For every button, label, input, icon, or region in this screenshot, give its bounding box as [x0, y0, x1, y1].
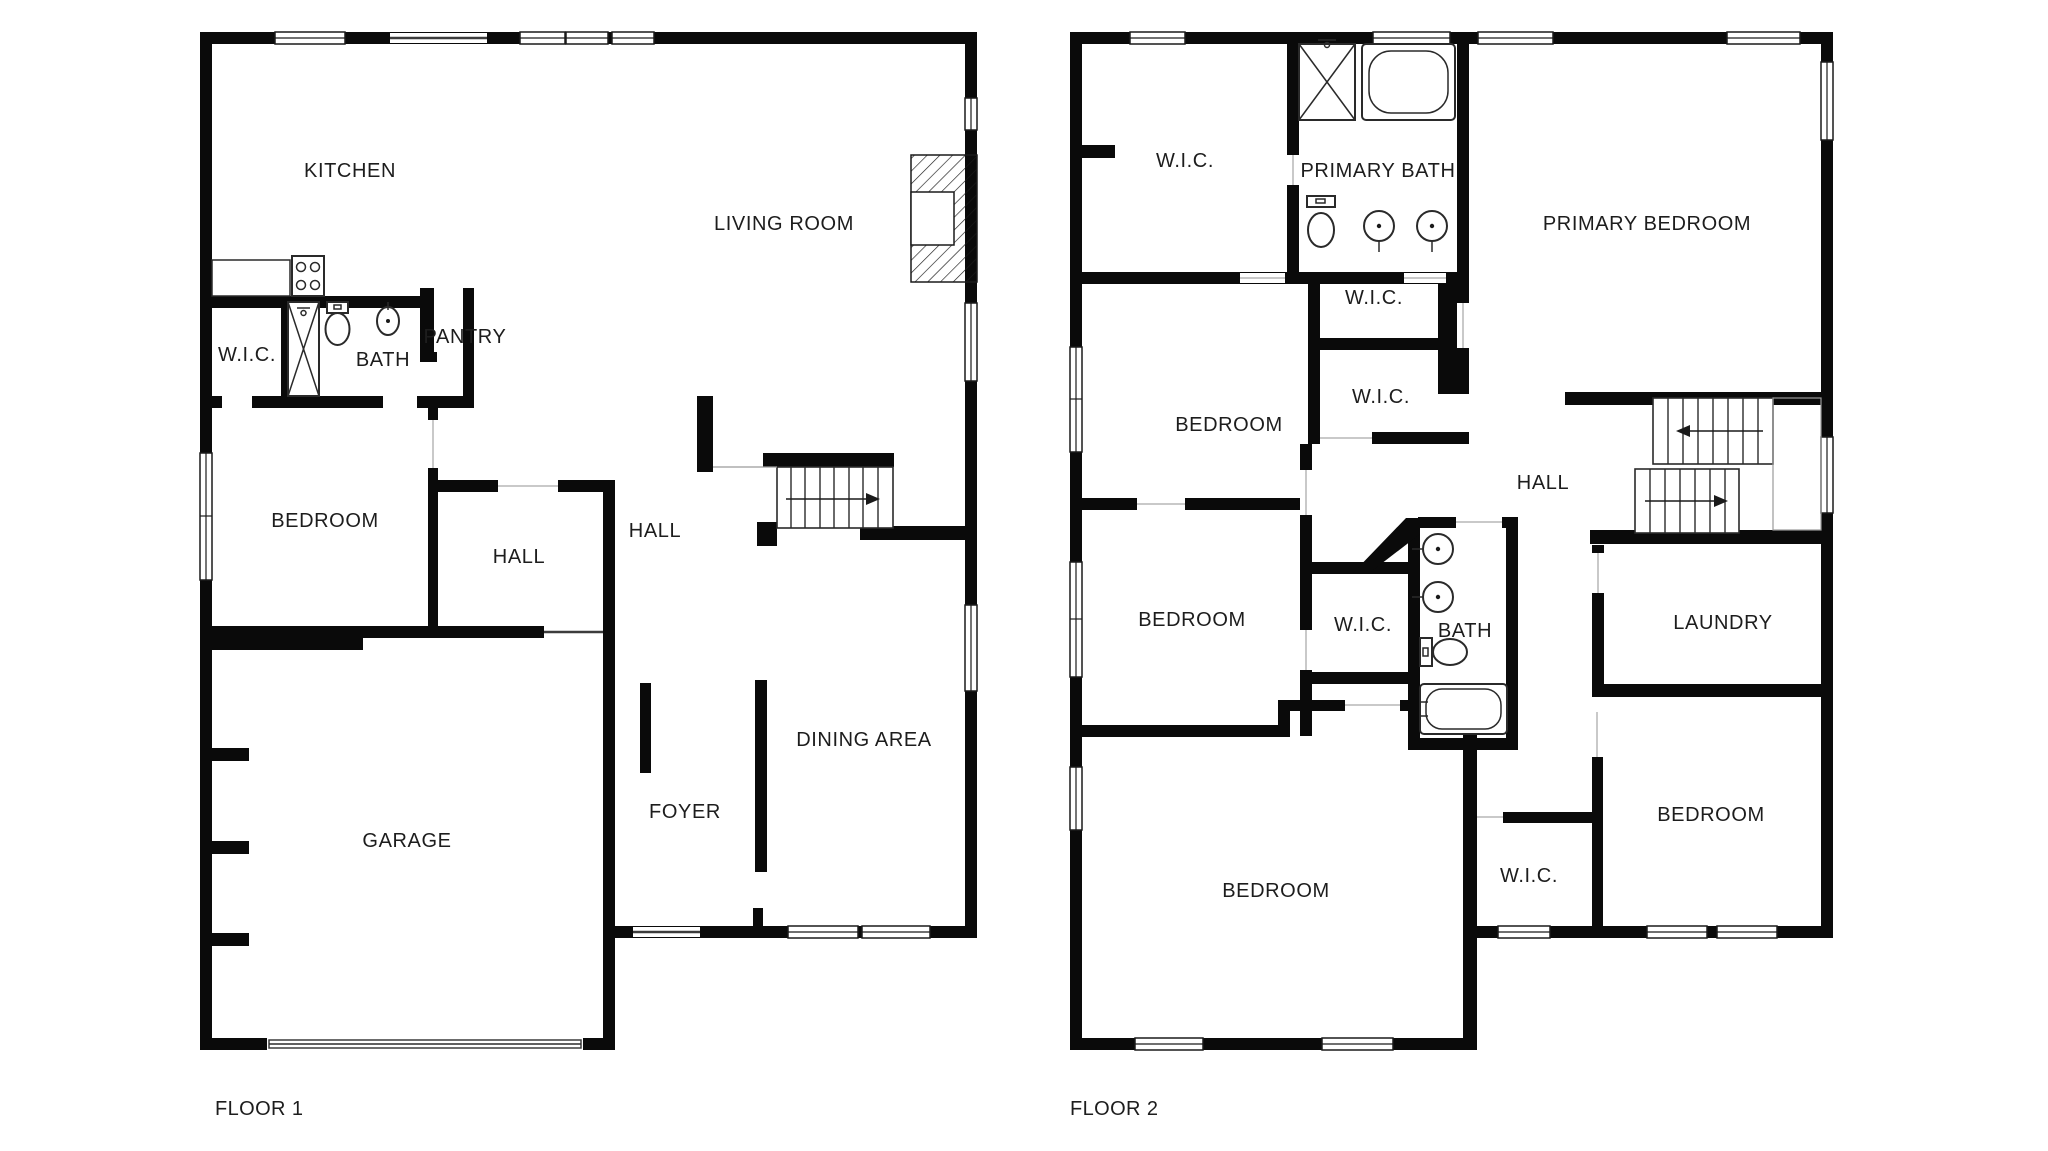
floor-2-caption: FLOOR 2 — [1070, 1098, 1158, 1120]
fireplace-icon — [911, 192, 954, 245]
room-label: PRIMARY BATH — [1300, 160, 1455, 182]
window-icon — [1070, 767, 1082, 830]
floor-plan-page: KITCHENLIVING ROOMW.I.C.BATHPANTRYBEDROO… — [0, 0, 2048, 1151]
wall — [281, 302, 288, 397]
wall — [252, 396, 384, 408]
sink-icon — [1436, 547, 1440, 551]
room-label: BEDROOM — [1138, 609, 1246, 631]
bathtub-icon — [1362, 44, 1455, 120]
wall — [1457, 43, 1469, 303]
wall — [200, 1038, 267, 1050]
toilet-icon — [326, 313, 350, 345]
wall — [1592, 684, 1833, 697]
room-label: LIVING ROOM — [714, 213, 854, 235]
room-label: BATH — [356, 349, 410, 371]
window-icon — [965, 605, 977, 691]
window-icon — [862, 926, 930, 938]
wall — [603, 625, 615, 1050]
room-label: HALL — [1517, 472, 1569, 494]
room-label: W.I.C. — [1500, 865, 1558, 887]
sink-icon — [1436, 595, 1440, 599]
wall — [640, 683, 651, 773]
wall — [420, 288, 434, 362]
fireplace-icon — [911, 155, 977, 282]
wall — [1278, 700, 1290, 737]
toilet-icon — [1308, 213, 1334, 247]
wall — [1300, 444, 1312, 470]
wall — [1070, 32, 1082, 1050]
floor-1-walls — [200, 32, 977, 1050]
room-label: BEDROOM — [271, 510, 379, 532]
toilet-icon — [1307, 196, 1335, 207]
floor-1-caption: FLOOR 1 — [215, 1098, 303, 1120]
room-label: W.I.C. — [218, 344, 276, 366]
wall — [1312, 672, 1410, 684]
window-icon — [1373, 32, 1450, 44]
window-icon — [1322, 1038, 1393, 1050]
window-icon — [965, 303, 977, 381]
wall — [1503, 812, 1592, 823]
room-label: W.I.C. — [1345, 287, 1403, 309]
toilet-icon — [1433, 639, 1467, 665]
room-label: LAUNDRY — [1673, 612, 1772, 634]
window-icon — [965, 98, 977, 130]
wall — [211, 626, 363, 650]
window-icon — [1498, 926, 1550, 938]
door-opening — [383, 396, 417, 408]
floor-1-fixtures — [212, 155, 977, 528]
room-label: BEDROOM — [1175, 414, 1283, 436]
wall — [753, 908, 763, 927]
room-label: HALL — [493, 546, 545, 568]
wall — [1287, 43, 1299, 155]
room-label: KITCHEN — [304, 160, 396, 182]
room-label: W.I.C. — [1156, 150, 1214, 172]
sink-icon — [1377, 224, 1381, 228]
wall — [1308, 284, 1320, 444]
wall — [438, 480, 498, 492]
double-sink-icon — [1364, 211, 1447, 252]
room-label: DINING AREA — [796, 729, 932, 751]
wall — [1070, 1038, 1477, 1050]
window-icon — [1070, 562, 1082, 677]
window-icon — [1135, 1038, 1203, 1050]
wall — [1408, 738, 1518, 750]
floor-2-plan: W.I.C.PRIMARY BATHPRIMARY BEDROOMW.I.C.W… — [1070, 32, 1833, 1120]
wall — [211, 396, 223, 408]
wall — [1287, 185, 1299, 273]
wall — [755, 680, 767, 872]
toilet-icon-2 — [1420, 638, 1467, 666]
door-opening — [222, 396, 252, 408]
staircase-icon — [1635, 398, 1821, 533]
room-label: FOYER — [649, 801, 721, 823]
sink-icon — [386, 319, 390, 323]
stair-tread — [1773, 398, 1821, 530]
toilet-icon — [326, 302, 350, 345]
shower-icon — [1299, 40, 1355, 120]
wall — [757, 522, 777, 546]
floor-plan-image: KITCHENLIVING ROOMW.I.C.BATHPANTRYBEDROO… — [0, 0, 2048, 1151]
wall — [763, 453, 894, 467]
window-icon — [200, 453, 212, 580]
wall — [1502, 517, 1518, 528]
wall — [1408, 518, 1420, 750]
wall — [1457, 348, 1469, 394]
wall — [1290, 700, 1345, 711]
wall — [1080, 145, 1115, 158]
wall — [1082, 725, 1290, 737]
window-icon — [1821, 62, 1833, 140]
wall — [1082, 498, 1308, 510]
stove-icon — [292, 256, 324, 296]
room-label: GARAGE — [362, 830, 451, 852]
floor-1-plan: KITCHENLIVING ROOMW.I.C.BATHPANTRYBEDROO… — [200, 32, 977, 1120]
room-label: HALL — [629, 520, 681, 542]
window-icon — [275, 32, 345, 44]
wall — [211, 748, 249, 761]
window-icon — [612, 32, 654, 44]
shower-icon — [288, 302, 319, 396]
sink-icon — [1430, 224, 1434, 228]
window-icon — [1070, 347, 1082, 452]
wall — [211, 933, 249, 946]
room-label: W.I.C. — [1352, 386, 1410, 408]
window-icon — [1717, 926, 1777, 938]
window-icon — [1130, 32, 1185, 44]
room-label: PRIMARY BEDROOM — [1543, 213, 1751, 235]
window-icon — [566, 32, 608, 44]
wall — [1592, 757, 1603, 938]
bathtub-icon-2 — [1420, 684, 1507, 734]
window-icon — [1727, 32, 1800, 44]
room-label: PANTRY — [424, 326, 507, 348]
room-label: BEDROOM — [1657, 804, 1765, 826]
window-icon — [1821, 437, 1833, 513]
wall — [211, 841, 249, 854]
wall — [603, 480, 615, 625]
wall — [1308, 338, 1438, 350]
bathtub-icon — [1362, 44, 1455, 120]
window-icon — [788, 926, 858, 938]
wall — [420, 352, 437, 362]
window-icon — [520, 32, 565, 44]
room-label: BATH — [1438, 620, 1492, 642]
stove-icon — [292, 256, 324, 296]
kitchen-counter — [212, 260, 290, 296]
staircase-icon — [713, 467, 893, 528]
window-icon — [1647, 926, 1707, 938]
wall — [697, 396, 713, 472]
room-label: BEDROOM — [1222, 880, 1330, 902]
wall — [1418, 517, 1456, 528]
window-icon — [1478, 32, 1553, 44]
toilet-icon — [1420, 638, 1432, 666]
room-label: W.I.C. — [1334, 614, 1392, 636]
wall — [1463, 700, 1477, 1050]
toilet-icon — [1307, 196, 1335, 247]
wall — [1300, 515, 1312, 630]
toilet-icon — [327, 302, 348, 313]
wall — [463, 288, 474, 408]
